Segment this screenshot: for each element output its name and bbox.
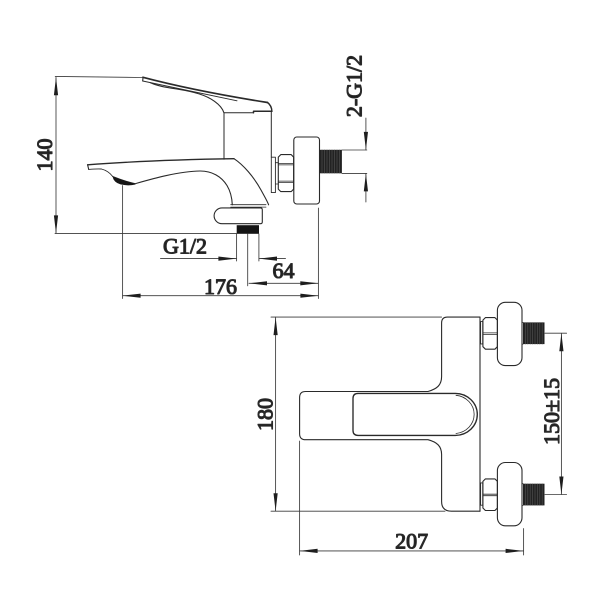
svg-text:207: 207: [395, 529, 428, 554]
svg-text:64: 64: [273, 258, 295, 283]
svg-text:176: 176: [204, 274, 237, 299]
svg-text:150±15: 150±15: [539, 378, 564, 445]
svg-text:2-G1/2: 2-G1/2: [342, 55, 367, 117]
svg-text:140: 140: [32, 139, 57, 172]
svg-text:G1/2: G1/2: [163, 234, 207, 259]
svg-text:180: 180: [253, 398, 278, 431]
